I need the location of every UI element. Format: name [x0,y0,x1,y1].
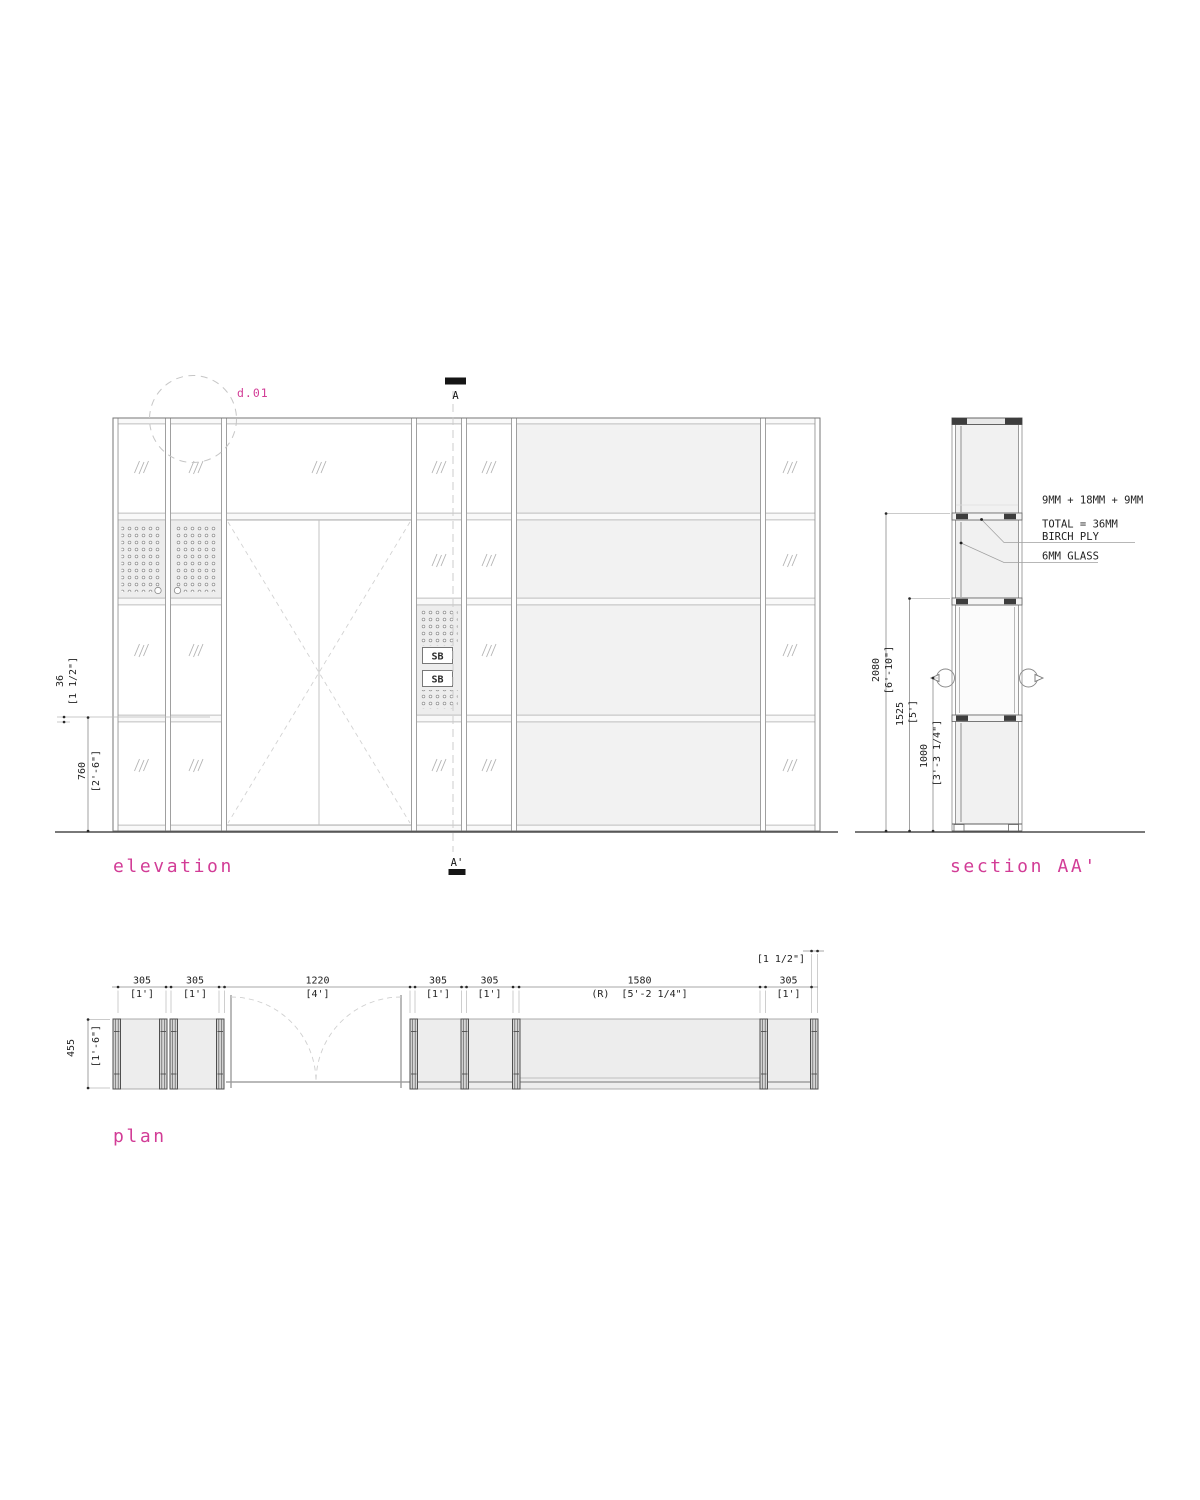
dim-1525-mm: 1525 [895,702,906,726]
dim-760-imperial: [2'-6"] [91,750,102,792]
plan-dim-depth-mm: 455 [66,1039,77,1057]
plan-dim-4-mm: 305 [429,976,447,987]
annotation-ply-layup: 9MM + 18MM + 9MM [1042,495,1143,507]
plan-dim-4-imperial: [1'] [426,989,450,1000]
plan-dim-1-imperial: [1'] [130,989,154,1000]
plan-view: 305 [1'] 305 [1'] 1220 [4'] 305 [1'] 305… [66,951,824,1147]
plan-dim-5-mm: 305 [480,976,498,987]
annotation-ply-total: TOTAL = 36MM [1042,519,1118,531]
plan-dim-3-mm: 1220 [305,976,329,987]
plan-dim-5-imperial: [1'] [477,989,501,1000]
plan-dim-2-imperial: [1'] [183,989,207,1000]
plan-dim-post: [1 1/2"] [757,954,805,965]
drawing-canvas: SB SB d.01 A A' 36 [1 1/2"] 760 [2'-6"] [0,0,1200,1500]
dim-2080-mm: 2080 [871,658,882,682]
sb-label-2: SB [431,675,443,686]
section-marker-bottom-bar [449,869,466,875]
plan-strip [410,1019,818,1089]
dim-1000-imperial: [3'-3 1/4"] [932,720,943,786]
plan-dim-depth-imperial: [1'-6"] [91,1025,102,1067]
annotation-ply-material: BIRCH PLY [1042,531,1100,543]
plan-dim-1-mm: 305 [133,976,151,987]
dim-2080-imperial: [6'-10"] [884,646,895,694]
section-marker-top-bar [445,378,466,385]
plan-dim-6-mm: 1580 [627,976,651,987]
dim-1525-imperial: [5'] [908,700,919,724]
dim-1000-mm: 1000 [919,744,930,768]
plan-box-2 [170,1019,224,1089]
section-marker-top-label: A [452,390,459,402]
annotation-glass: 6MM GLASS [1042,551,1099,563]
plan-title: plan [113,1126,167,1147]
plan-dim-7-imperial: [1'] [776,989,800,1000]
section-title: section AA' [950,856,1098,877]
section-view: 2080 [6'-10"] 1525 [5'] 1000 [3'-3 1/4"]… [855,418,1145,877]
handle-right-arrow-icon [1035,675,1043,682]
dim-760-mm: 760 [77,762,88,780]
double-door [227,520,412,825]
plan-box-1 [113,1019,167,1089]
elevation-view: SB SB d.01 A A' 36 [1 1/2"] 760 [2'-6"] [55,376,838,878]
plan-dim-6-imperial: (R) [5'-2 1/4"] [591,989,687,1000]
dim-36-imperial: [1 1/2"] [68,657,79,705]
plan-dim-7-mm: 305 [779,976,797,987]
drawing-sheet: SB SB d.01 A A' 36 [1 1/2"] 760 [2'-6"] [0,0,1200,1500]
section-panels [956,425,1019,825]
sb-label-1: SB [431,652,443,663]
plan-door [231,995,401,1088]
plan-dim-3-imperial: [4'] [305,989,329,1000]
detail-label: d.01 [237,386,269,400]
elevation-title: elevation [113,856,234,877]
section-marker-bottom-label: A' [451,857,464,869]
plan-dim-2-mm: 305 [186,976,204,987]
dim-36-mm: 36 [55,675,66,687]
